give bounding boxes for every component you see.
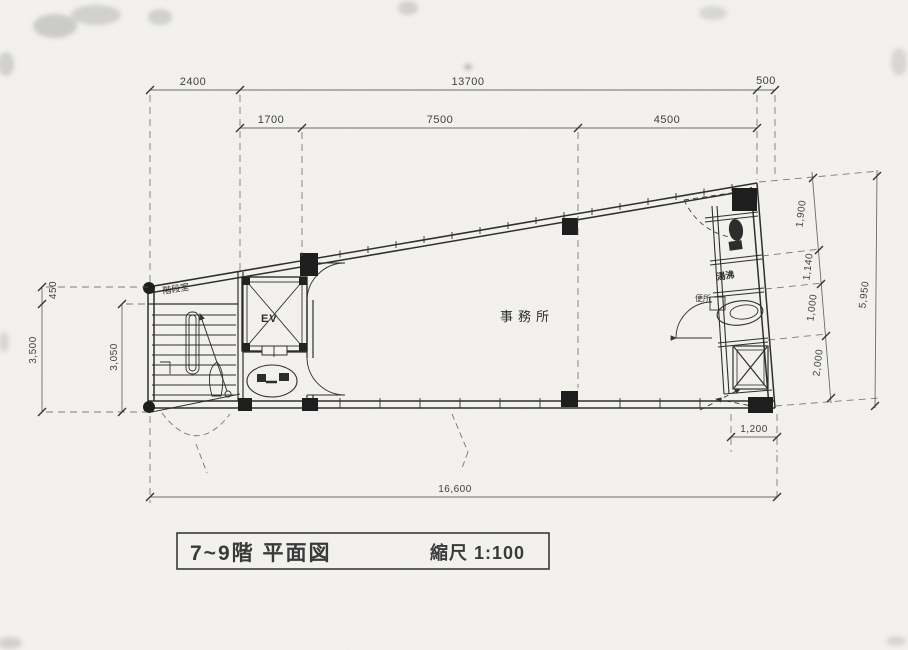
dim-450: 450	[48, 281, 59, 299]
dim-13700: 13700	[451, 76, 484, 88]
dim-4500: 4500	[654, 114, 680, 126]
dim-16600: 16,600	[438, 484, 472, 495]
dim-3500: 3,500	[28, 336, 39, 364]
title-floor-label: 7~9階 平面図	[190, 542, 331, 565]
dim-7500: 7500	[427, 114, 453, 126]
dim-2400: 2400	[180, 76, 206, 88]
label-toilet: 便所	[695, 293, 711, 303]
title-scale-label: 縮尺 1:100	[430, 542, 525, 563]
floor-plan-drawing: 2400 13700 500 1700 7500 4500 450 3,500 …	[0, 0, 908, 650]
dim-1700: 1700	[258, 114, 284, 126]
dim-500: 500	[756, 75, 776, 87]
dim-1200: 1,200	[740, 424, 768, 435]
label-elevator: EV	[261, 313, 278, 325]
dim-3050: 3,050	[109, 343, 120, 371]
label-office: 事務所	[500, 309, 554, 324]
floorplan-sheet: 2400 13700 500 1700 7500 4500 450 3,500 …	[0, 0, 908, 650]
